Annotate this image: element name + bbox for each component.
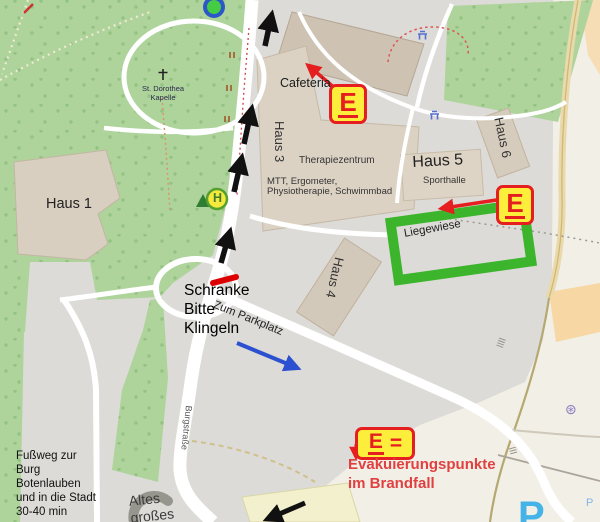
bus-stop-letter: H <box>211 192 224 206</box>
map-marker-icon <box>205 0 223 16</box>
evac-legend-line1: Evakuierungspunkte <box>348 456 496 473</box>
footpath-line3: Botenlauben <box>16 477 96 491</box>
label-kapelle: St. Dorothea Kapelle <box>128 84 198 103</box>
orchard-area <box>549 283 600 342</box>
label-altes-grosses: Altes großes <box>128 488 175 522</box>
parking-small-icon: P <box>586 497 593 509</box>
label-therapie-detail: MTT, Ergometer, Physiotherapie, Schwimmb… <box>267 177 392 198</box>
label-sporthalle: Sporthalle <box>423 176 466 186</box>
parking-icon: P <box>518 494 545 522</box>
artwork-icon: ⊛ <box>565 402 577 417</box>
label-therapiezentrum: Therapiezentrum <box>299 155 375 166</box>
footpath-line4: und in die Stadt <box>16 491 96 505</box>
therapie-detail-line2: Physiotherapie, Schwimmbad <box>267 187 392 197</box>
evac-marker-letter: E <box>505 191 524 219</box>
footpath-note: Fußweg zur Burg Botenlauben und in die S… <box>16 449 96 519</box>
evac-marker-cafeteria: E <box>329 84 367 124</box>
label-haus1: Haus 1 <box>46 197 92 213</box>
evac-legend-line2: im Brandfall <box>348 475 435 492</box>
kapelle-line2: Kapelle <box>128 93 198 102</box>
barrier-note-line1: Schranke <box>184 281 249 300</box>
label-haus3: Haus 3 <box>272 121 286 162</box>
label-cafeteria: Cafeteria <box>280 77 331 91</box>
legend-equals: = <box>390 432 402 456</box>
legend-marker-letter: E <box>368 432 384 455</box>
evacuation-map: Cafeteria Haus 1 Haus 3 Therapiezentrum … <box>0 0 600 522</box>
label-haus5: Haus 5 <box>412 151 464 171</box>
footpath-line1: Fußweg zur <box>16 449 96 463</box>
kapelle-line1: St. Dorothea <box>128 84 198 93</box>
evac-marker-letter: E <box>338 90 357 118</box>
footpath-line5: 30-40 min <box>16 505 96 519</box>
evac-marker-liegewiese: E <box>496 185 534 225</box>
footpath-line2: Burg <box>16 463 96 477</box>
